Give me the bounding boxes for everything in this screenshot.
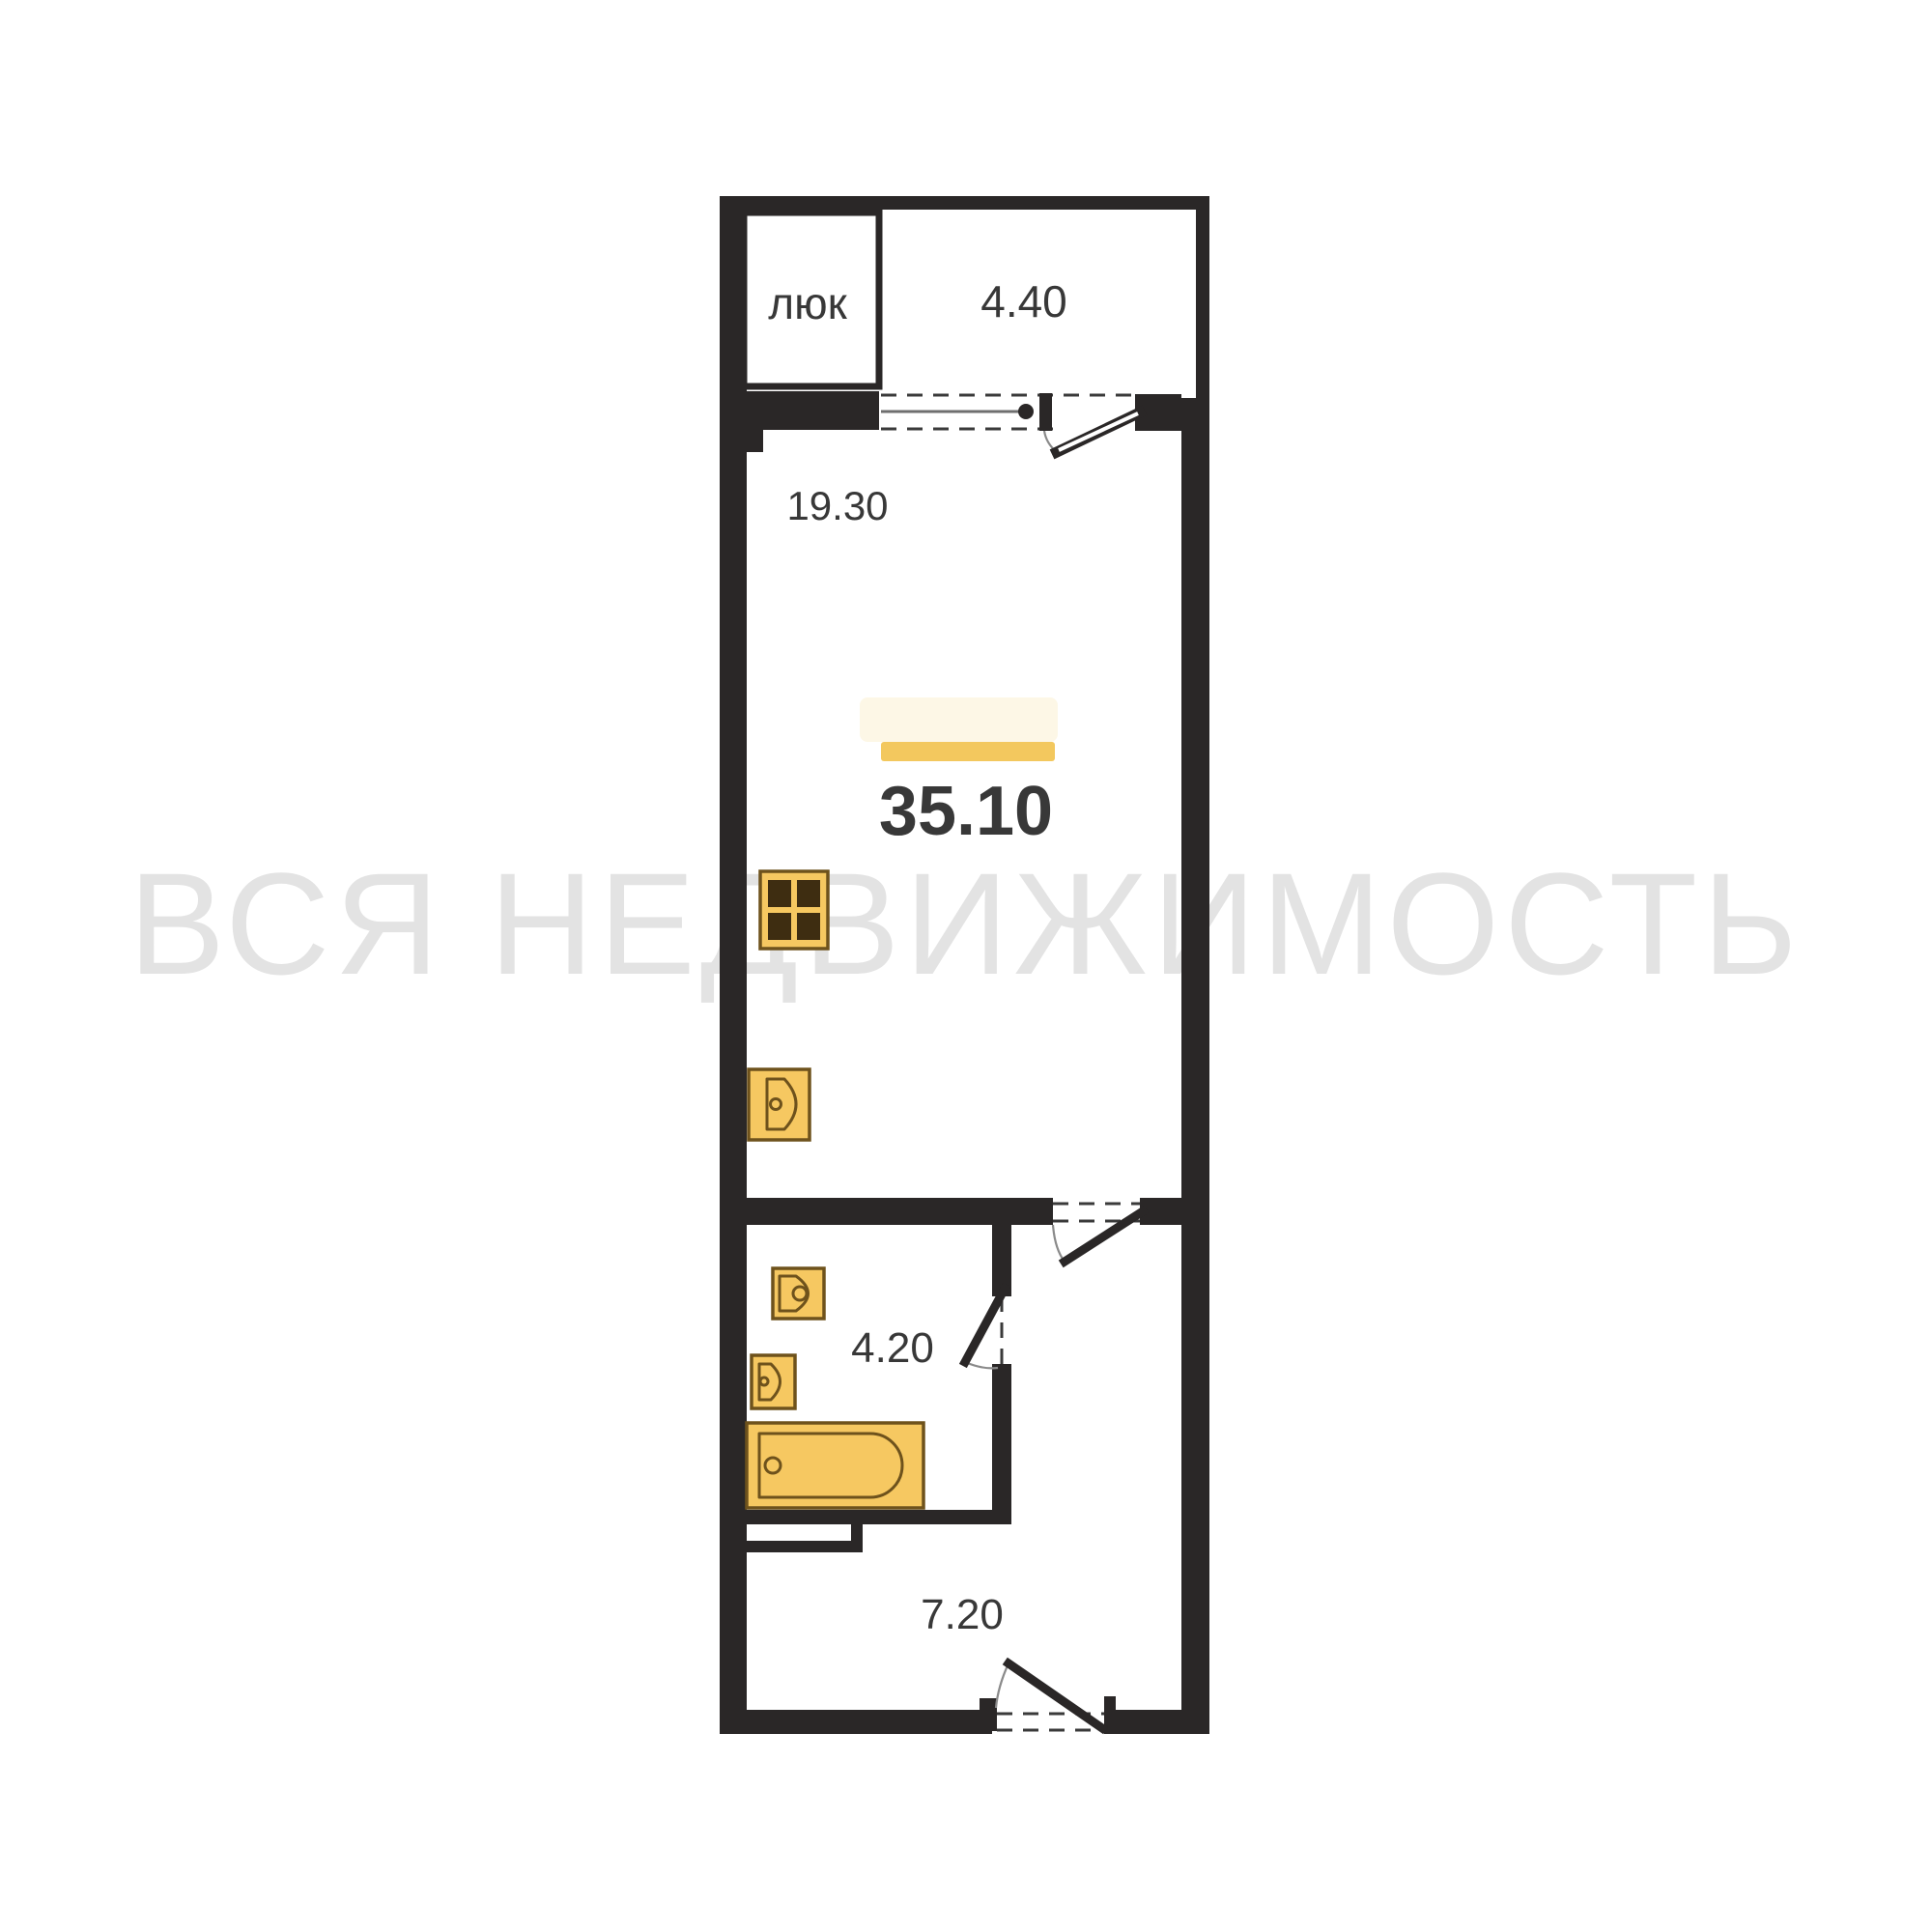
accent-line [881, 742, 1055, 761]
toilet-icon [773, 1268, 824, 1319]
hallway-area-label: 7.20 [921, 1591, 1004, 1638]
room-door-leaf [1065, 1211, 1143, 1262]
floorplan-page: ВСЯ НЕДВИЖИМОСТЬ люк [0, 0, 1932, 1932]
stove-burner [768, 880, 791, 907]
bathroom-area-label: 4.20 [851, 1324, 934, 1372]
floorplan-canvas: ВСЯ НЕДВИЖИМОСТЬ люк [0, 0, 1932, 1932]
duct-bar [747, 1541, 863, 1552]
entrance-door [996, 1663, 1104, 1730]
wall-divider-left [747, 1198, 1053, 1225]
entrance-hinge-block [980, 1698, 997, 1731]
wall-balcony-sill [720, 391, 879, 430]
wall-balcony-right [1196, 196, 1209, 401]
balcony-window-door [881, 393, 1140, 452]
room-door-arc [1053, 1225, 1065, 1262]
entrance-door-leaf [1009, 1663, 1102, 1728]
balcony-door-leaf-core [1059, 413, 1138, 450]
wall-bathroom-lower [992, 1364, 1011, 1524]
total-area-accent [860, 697, 1058, 761]
balcony-area-label: 4.40 [980, 276, 1067, 327]
window-post [1039, 393, 1052, 431]
stove-burner [797, 913, 820, 940]
bathtub-icon [747, 1423, 923, 1508]
entrance-door-arc [996, 1663, 1009, 1708]
stove-burner [768, 913, 791, 940]
window-knob [1018, 404, 1034, 419]
kitchen-sink-icon [749, 1069, 810, 1140]
duct-connector [851, 1524, 863, 1552]
hatch-label: люк [768, 278, 847, 328]
bathtub-body [747, 1423, 923, 1508]
wall-right [1181, 398, 1209, 1734]
wall-top [720, 196, 1209, 210]
total-area-label: 35.10 [879, 773, 1053, 850]
stove-burner [797, 880, 820, 907]
stove-icon [760, 871, 828, 949]
washbasin-icon [752, 1355, 795, 1408]
wall-bottom-right [1104, 1710, 1209, 1734]
wall-bathroom-bottom [720, 1510, 1011, 1524]
entrance-jamb-nub [1104, 1696, 1116, 1710]
living-area-label: 19.30 [786, 483, 888, 528]
hatch-box: люк [744, 213, 879, 386]
bathroom-door [965, 1289, 1005, 1368]
room-door [1053, 1204, 1143, 1262]
watermark-text: ВСЯ НЕДВИЖИМОСТЬ [128, 842, 1803, 1005]
wall-step [720, 430, 763, 452]
bathroom-door-leaf [965, 1289, 1005, 1362]
wall-bottom-left [720, 1710, 992, 1734]
accent-glow [860, 697, 1058, 742]
